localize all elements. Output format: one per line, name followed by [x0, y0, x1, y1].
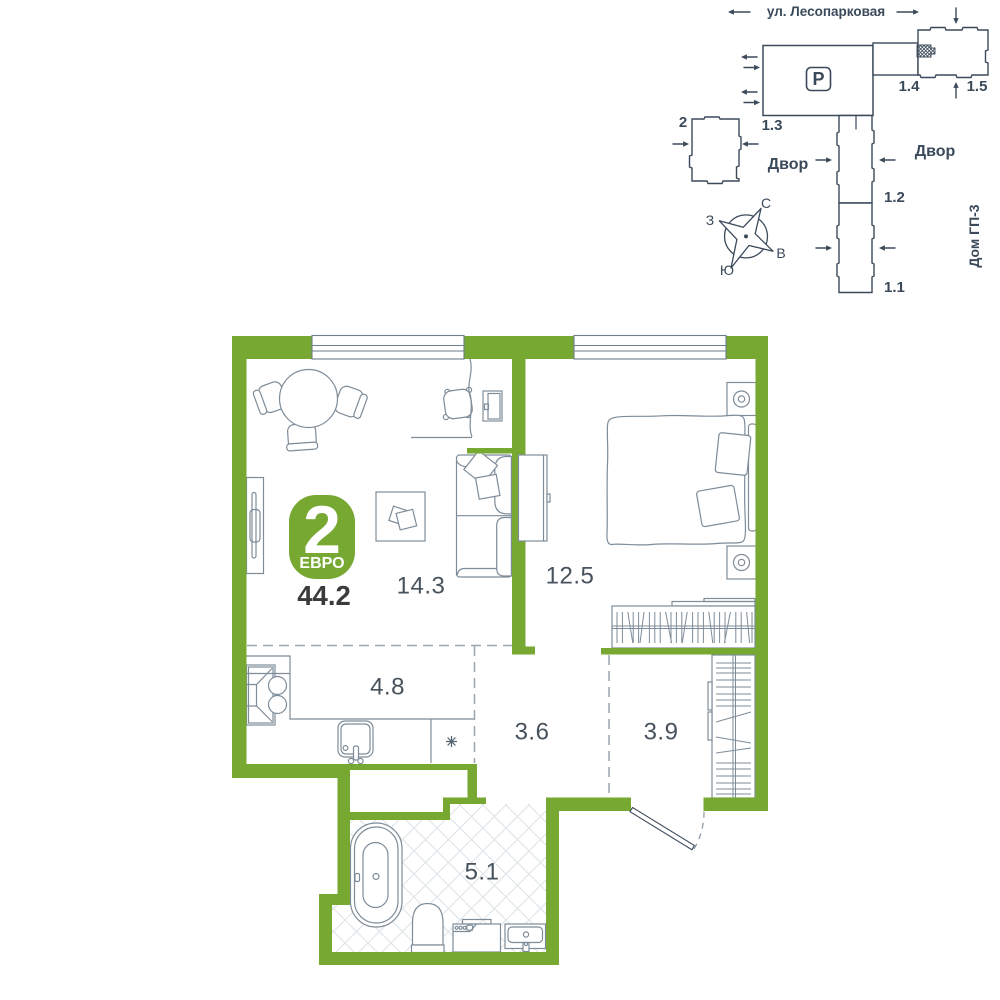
svg-text:ЕВРО: ЕВРО [299, 555, 344, 572]
svg-text:1.1: 1.1 [884, 279, 905, 296]
svg-text:3.9: 3.9 [644, 719, 679, 746]
svg-text:С: С [761, 195, 771, 211]
svg-text:1.2: 1.2 [884, 189, 905, 206]
svg-text:4.8: 4.8 [370, 674, 405, 701]
svg-text:44.2: 44.2 [297, 580, 351, 611]
svg-text:Двор: Двор [768, 156, 809, 173]
svg-text:2: 2 [679, 114, 687, 131]
svg-text:P: P [812, 69, 824, 89]
svg-text:1.4: 1.4 [899, 78, 921, 95]
svg-text:3.6: 3.6 [515, 719, 550, 746]
svg-text:З: З [706, 212, 714, 228]
svg-text:Дом ГП-3: Дом ГП-3 [966, 204, 982, 267]
svg-text:12.5: 12.5 [546, 563, 595, 590]
svg-text:ул. Лесопарковая: ул. Лесопарковая [767, 4, 885, 19]
svg-text:В: В [776, 245, 785, 261]
svg-text:Двор: Двор [915, 143, 956, 160]
svg-text:1.3: 1.3 [762, 117, 783, 134]
svg-text:Ю: Ю [720, 262, 734, 278]
svg-text:5.1: 5.1 [465, 859, 500, 886]
svg-text:14.3: 14.3 [397, 573, 446, 600]
svg-text:1.5: 1.5 [967, 78, 988, 95]
